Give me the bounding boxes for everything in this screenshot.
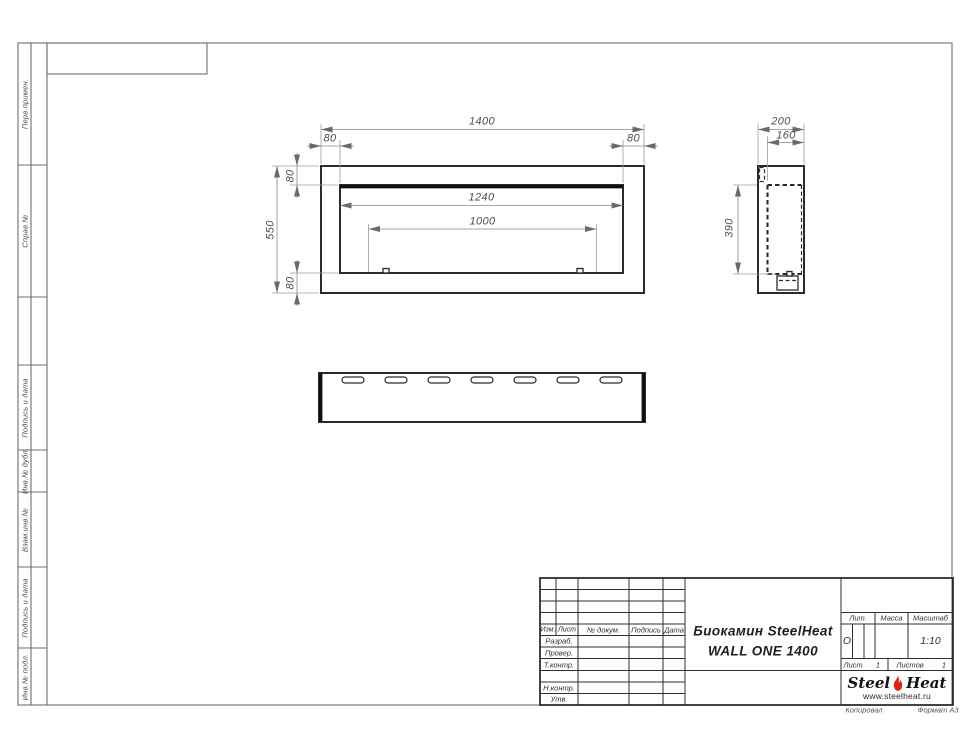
margin-label-vzam-inv: Взам.инв.№	[21, 507, 29, 551]
margin-label-inv-dubl: Инв.№ дубл.	[21, 448, 29, 494]
dim-inner-height: 390	[725, 218, 736, 238]
tb-label-sheets: Листов	[896, 661, 923, 669]
tb-header-mass: Масса	[880, 614, 902, 622]
tb-value-sheet-no: 1	[876, 661, 880, 669]
drawing-sheet: Перв.примен. Справ.№ Подпись и дата Инв.…	[0, 0, 970, 749]
dim-opening-width: 1240	[468, 193, 494, 204]
top-view	[319, 373, 645, 422]
side-view	[733, 124, 804, 294]
document-title-line1: Биокамин SteelHeat	[693, 624, 832, 638]
dim-overall-height: 550	[265, 220, 276, 240]
dim-inset-left: 80	[323, 133, 336, 144]
front-view	[272, 124, 658, 306]
tb-row-tkontr: Т.контр.	[544, 661, 574, 669]
dim-inset-bottom: 80	[285, 276, 296, 289]
flame-icon	[891, 675, 905, 692]
margin-label-perv-primen: Перв.примен.	[21, 79, 29, 129]
tb-header-date: Дата	[664, 626, 684, 634]
logo-site-url: www.steelheat.ru	[863, 691, 931, 701]
dim-overall-width: 1400	[469, 117, 495, 128]
footer-format-label: Формат А3	[917, 706, 958, 714]
tb-row-nkontr: Н.контр.	[543, 684, 575, 692]
margin-label-inv-podl: Инв.№ подл.	[21, 653, 29, 700]
dim-inner-depth: 160	[776, 130, 796, 141]
tb-header-sign: Подпись	[631, 626, 661, 634]
designation-box	[47, 43, 207, 74]
tb-header-izm: Изм.	[541, 627, 556, 634]
tb-header-list: Лист	[558, 627, 576, 634]
tb-header-doc-no: № докум.	[587, 626, 620, 634]
dim-burner-span: 1000	[469, 216, 495, 227]
tb-label-sheet: Лист	[843, 661, 862, 669]
footer-copied-label: Копировал	[845, 706, 882, 714]
margin-label-podpis-data-2: Подпись и дата	[21, 578, 29, 638]
dim-depth: 200	[771, 117, 791, 128]
steelheat-logo: Steel Heat www.steelheat.ru	[841, 671, 953, 705]
dim-inset-top: 80	[285, 169, 296, 182]
tb-value-lit: О	[843, 636, 851, 647]
margin-label-podpis-data-1: Подпись и дата	[21, 378, 29, 438]
tb-value-sheets-total: 1	[942, 661, 946, 669]
tb-row-utv: Утв.	[550, 695, 567, 703]
tb-value-scale: 1:10	[920, 636, 940, 647]
tb-row-razrab: Разраб.	[545, 637, 572, 645]
tb-row-prover: Провер.	[545, 649, 573, 657]
tb-header-lit: Лит.	[849, 614, 867, 622]
dim-inset-right: 80	[627, 133, 640, 144]
logo-word-heat: Heat	[906, 676, 946, 691]
margin-label-sprav-no: Справ.№	[21, 214, 29, 247]
document-title-line2: WALL ONE 1400	[708, 644, 818, 658]
logo-word-steel: Steel	[848, 676, 891, 691]
tb-header-scale: Масштаб	[913, 614, 948, 622]
